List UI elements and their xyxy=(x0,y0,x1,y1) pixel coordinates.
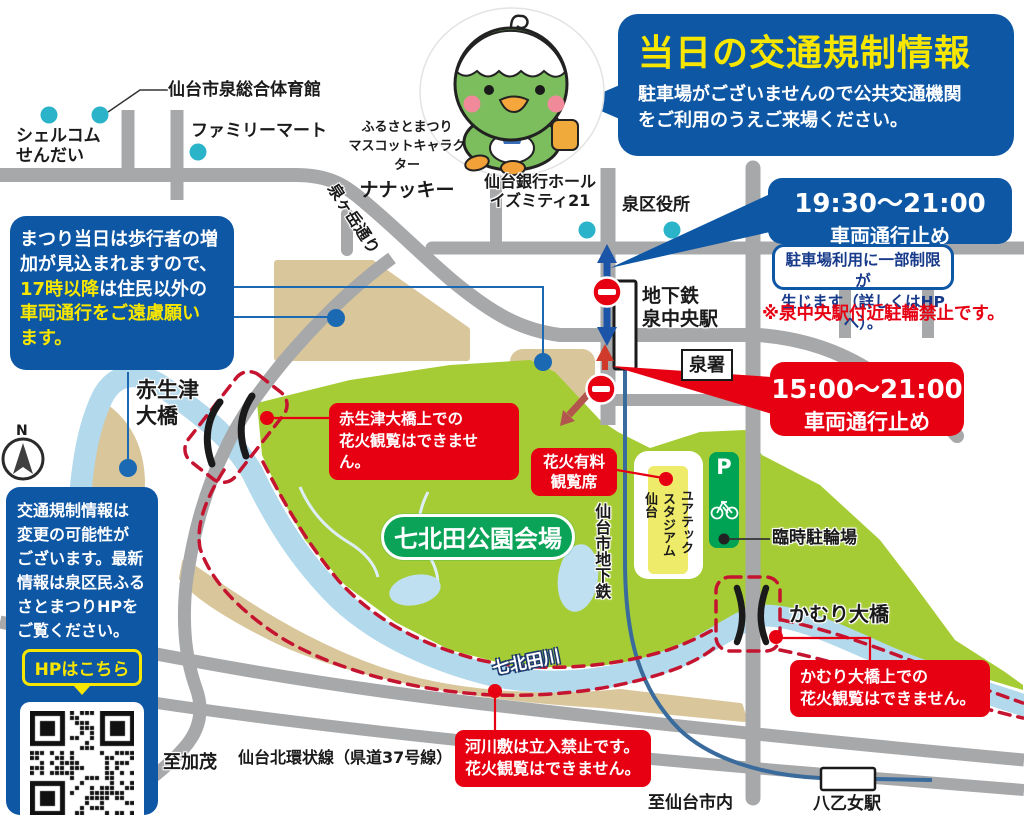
label-yaotome-station: 八乙女駅 xyxy=(813,794,881,814)
header-subtitle: 駐車場がございませんので公共交通機関 をご利用のうえご来場ください。 xyxy=(638,82,994,134)
mascot-caption-line2: マスコットキャラクター xyxy=(348,135,466,173)
update-notice-text: 交通規制情報は 変更の可能性が ございます。最新 情報は泉区民ふる さとまつりH… xyxy=(17,499,147,643)
update-notice-box: 交通規制情報は 変更の可能性が ございます。最新 情報は泉区民ふる さとまつりH… xyxy=(6,487,158,815)
qr-code xyxy=(20,702,144,819)
label-familymart: ファミリーマート xyxy=(191,121,327,141)
pedestrian-notice-box: まつり当日は歩行者の増 加が見込まれますので、 17時以降は住民以外の 車両通行… xyxy=(10,216,234,370)
header-box: 当日の交通規制情報 駐車場がございませんので公共交通機関 をご利用のうえご来場く… xyxy=(618,14,1014,156)
label-to-kamo: 至加茂 xyxy=(163,752,217,774)
label-subway-line: 仙台市地下鉄 xyxy=(592,503,611,599)
paid-seats-box: 花火有料 観覧席 xyxy=(531,448,617,496)
compass-icon xyxy=(3,439,43,479)
qr-code-image xyxy=(30,711,134,815)
riverbed-warning-box: 河川敷は立入禁止です。 花火観覧はできません。 xyxy=(455,730,651,787)
evening-closure-box: 19:30〜21:00 車両通行止め xyxy=(768,178,1012,244)
label-beltline: 仙台北環状線（県道37号線） xyxy=(238,748,452,767)
page-title: 当日の交通規制情報 xyxy=(638,24,994,76)
no-entry-icon xyxy=(587,375,616,404)
day-closure-box: 15:00〜21:00 車両通行止め xyxy=(770,362,964,436)
label-shellcom: シェルコム せんだい xyxy=(16,126,101,167)
warning-line: かむり大橋上での xyxy=(800,666,980,688)
mascot-caption-line1: ふるさとまつり xyxy=(348,116,466,135)
label-bike-parking: 臨時駐輪場 xyxy=(772,528,857,548)
compass-n-label: N xyxy=(16,423,28,440)
hp-link-button[interactable]: HPはこちら xyxy=(22,649,142,686)
label-to-sendai: 至仙台市内 xyxy=(648,793,733,813)
notice-line: 加が見込まれますので、 xyxy=(20,253,224,278)
kamuri-warning-box: かむり大橋上での 花火観覧はできません。 xyxy=(790,660,990,717)
label-bank-hall: 仙台銀行ホール イズミティ21 xyxy=(470,172,610,210)
label-gymnasium: 仙台市泉総合体育館 xyxy=(168,80,321,100)
no-entry-icon xyxy=(593,278,622,307)
label-stadium-col2: スタジアム xyxy=(658,492,677,557)
warning-line: 花火観覧はできません。 xyxy=(465,758,641,780)
notice-line: 17時以降は住民以外の xyxy=(20,278,224,303)
warning-line: 赤生津大橋上での xyxy=(339,409,509,431)
label-kamuri-bridge: かむり大橋 xyxy=(789,602,889,626)
parking-note-box: 駐車場利用に一部制限が 生じます（詳しくはHPへ）。 xyxy=(772,244,954,290)
label-ward-office: 泉区役所 xyxy=(622,195,690,215)
closure-time: 19:30〜21:00 xyxy=(768,183,1012,220)
traffic-restriction-map: 当日の交通規制情報 駐車場がございませんので公共交通機関 をご利用のうえご来場く… xyxy=(0,0,1024,819)
notice-highlight: 車両通行をご遠慮願い xyxy=(20,302,224,327)
notice-highlight: ます。 xyxy=(20,327,224,352)
hp-button-pointer xyxy=(74,686,90,695)
closure-time: 15:00〜21:00 xyxy=(770,369,964,406)
notice-line: まつり当日は歩行者の増 xyxy=(20,228,224,253)
yaotome-station-shape xyxy=(821,768,875,790)
mascot-name: ナナッキー xyxy=(348,175,466,202)
label-police-station: 泉署 xyxy=(681,349,733,381)
notice-highlight: 17時以降 xyxy=(20,279,99,300)
warning-line: 観覧席 xyxy=(533,472,615,492)
akaoizu-warning-box: 赤生津大橋上での 花火観覧はできません。 xyxy=(329,403,519,480)
label-akaoizu-bridge: 赤生津 大橋 xyxy=(136,377,199,430)
bicycle-ban-note: ※泉中央駅付近駐輪禁止です。 xyxy=(762,300,1024,325)
mascot-caption: ふるさとまつり マスコットキャラクター ナナッキー xyxy=(348,116,466,202)
warning-line: 河川敷は立入禁止です。 xyxy=(465,736,641,758)
warning-line: 花火観覧はできません。 xyxy=(339,431,509,474)
warning-line: 花火観覧はできません。 xyxy=(800,688,980,710)
warning-line: 花火有料 xyxy=(533,452,615,472)
label-stadium-col3: 仙台 xyxy=(640,492,659,518)
label-izumi-chuo-station: 地下鉄 泉中央駅 xyxy=(642,285,718,331)
park-venue-pill: 七北田公園会場 xyxy=(381,514,575,560)
label-stadium-col1: ユアテック xyxy=(676,489,695,554)
parking-p-icon: P xyxy=(710,455,738,479)
closure-label: 車両通行止め xyxy=(770,406,964,436)
